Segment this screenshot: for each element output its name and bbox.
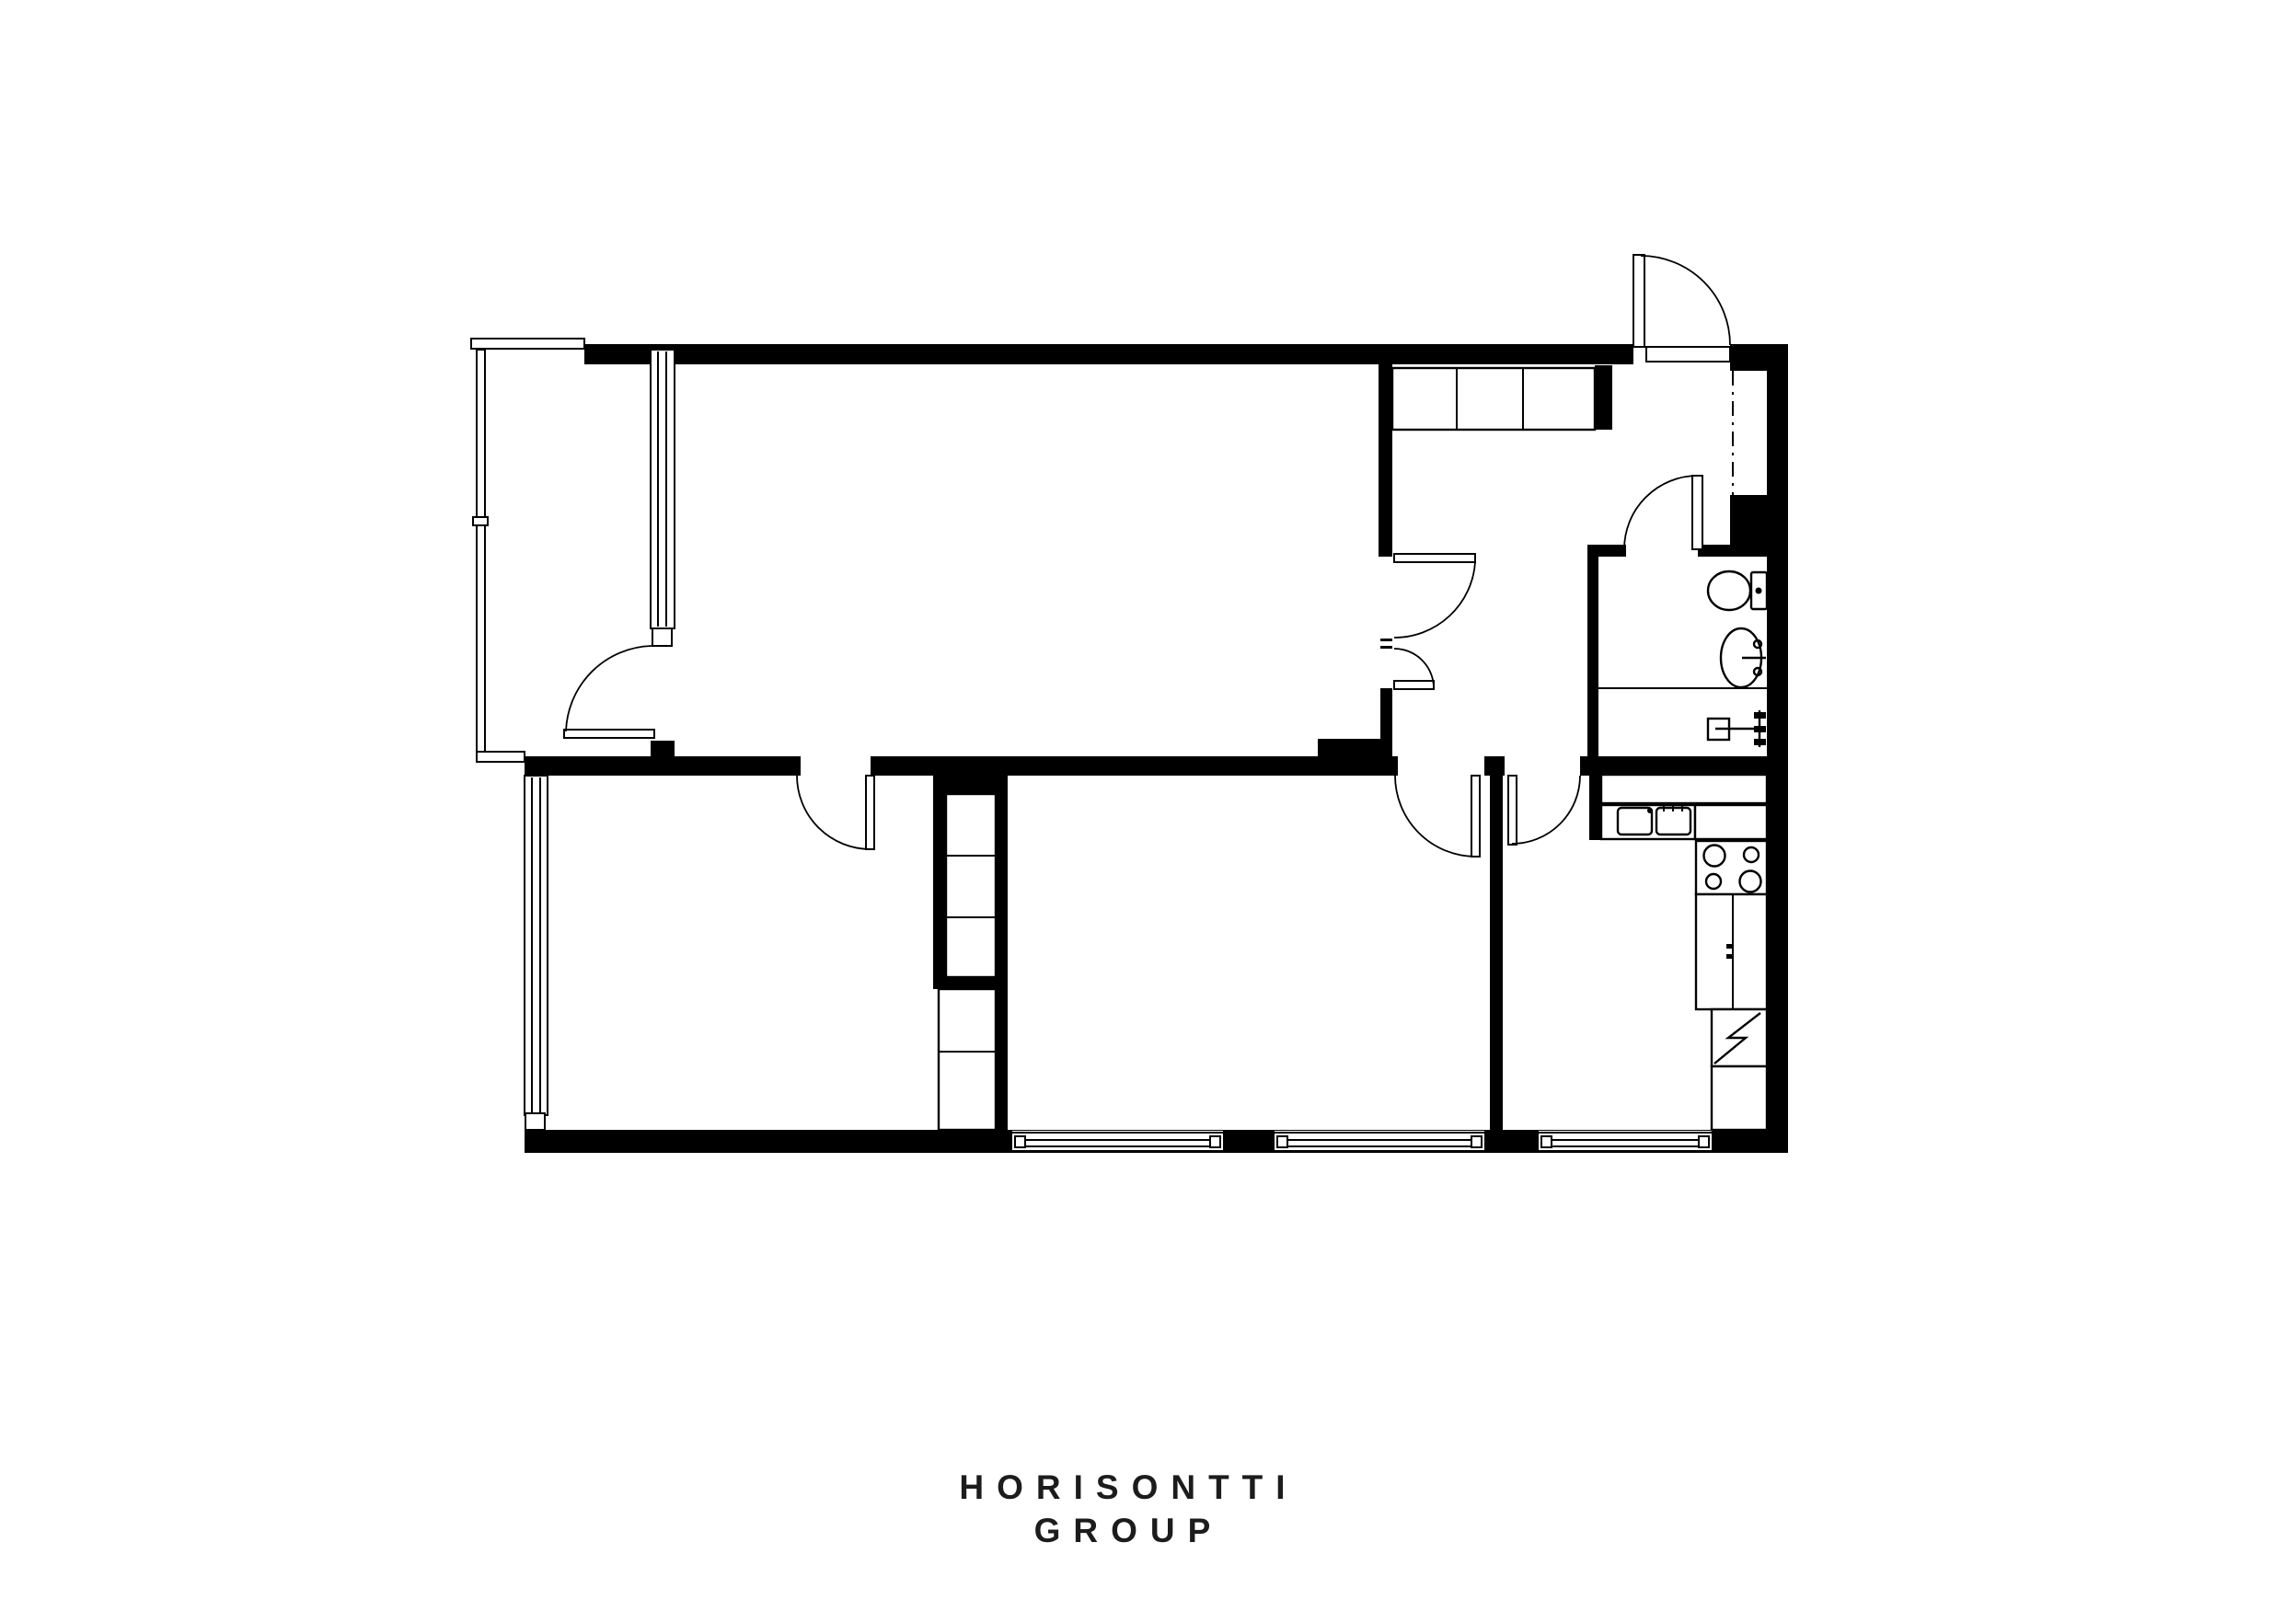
upper-wardrobe-box — [946, 794, 996, 977]
walls — [525, 344, 1788, 1153]
bedroom-wardrobe-icon — [939, 989, 996, 1130]
brand-line-1: HORISONTTI — [0, 1470, 2277, 1504]
balcony-door-leaf — [564, 730, 654, 738]
window-end-post — [1277, 1136, 1287, 1147]
window-icon — [525, 776, 548, 1130]
shower-mixer-knob — [1754, 712, 1766, 719]
lower-wardrobe-box — [939, 989, 996, 1130]
hall-door-arc — [1394, 562, 1475, 638]
cabinet-box — [1696, 894, 1767, 1009]
mid-wall-seg-3 — [1580, 756, 1788, 776]
mid-wall-step — [1318, 739, 1392, 760]
bedroom1-window-post — [525, 1113, 545, 1130]
floor-plan-canvas: HORISONTTI GROUP — [0, 0, 2296, 1623]
column-right-bar — [996, 768, 1008, 1153]
entrance-door-icon — [1633, 255, 1730, 362]
bedroom2-door-icon — [1395, 776, 1480, 857]
balcony-glazing-post — [652, 628, 672, 646]
hall-wall-lower — [1380, 688, 1392, 742]
four-burner-stove-icon — [1696, 841, 1767, 894]
bedroom1-window — [525, 776, 548, 1115]
top-wall — [584, 344, 1633, 364]
balcony-stub-wall — [651, 741, 675, 760]
bathroom-door-icon — [1624, 476, 1702, 549]
washbasin-icon — [1721, 628, 1766, 687]
kitchen-fixtures — [1601, 775, 1767, 1130]
sink-faucet-dot — [1647, 808, 1653, 813]
right-wall — [1767, 344, 1788, 1153]
bedroom-wardrobe-icon — [946, 794, 996, 977]
cabinet-handle — [1726, 954, 1734, 959]
kitchen-door-leaf — [1508, 776, 1517, 845]
entrance-threshold — [1646, 347, 1730, 362]
floor-plan-drawing — [0, 0, 2296, 1623]
column-mid-band — [933, 977, 1003, 989]
bedroom1-door-arc — [797, 776, 871, 849]
bathroom-door-arc — [1624, 476, 1698, 549]
window-icon — [651, 350, 675, 646]
bedroom2-door-leaf — [1471, 776, 1480, 857]
bottom-windows — [1012, 1131, 1712, 1150]
balcony-door-arc — [566, 646, 652, 731]
mid-wall-pier — [1484, 756, 1505, 776]
window-end-post — [1471, 1136, 1482, 1147]
bedroom1-door-leaf — [866, 776, 874, 849]
brand-logo: HORISONTTI GROUP — [0, 1470, 2277, 1548]
column-left-bar — [933, 794, 946, 986]
hall-wall-upper — [1379, 363, 1392, 557]
base-cabinet-icon — [1712, 1066, 1767, 1130]
toilet-flush-dot — [1756, 588, 1762, 594]
brand-line-2: GROUP — [0, 1514, 2277, 1548]
bathroom-door-leaf — [1692, 476, 1702, 549]
hall-small-leaf — [1394, 681, 1434, 689]
livingroom-hall-door-icon — [1394, 554, 1475, 689]
kitchen-stub-wall — [1589, 776, 1601, 840]
balcony-rail-bottom — [477, 752, 525, 762]
refrigerator-icon — [1712, 1009, 1767, 1066]
kitchen-door-icon — [1508, 776, 1580, 845]
balcony-rail-left — [477, 350, 485, 753]
bathroom-fixtures — [1598, 571, 1767, 747]
shower-mixer-knob — [1754, 726, 1766, 732]
hall-wall-mullion-b — [1380, 646, 1392, 649]
shower-mixer-knob — [1754, 739, 1766, 745]
window-end-post — [1210, 1136, 1220, 1147]
hall-door-leaf — [1394, 554, 1475, 562]
bedroom2-door-arc — [1395, 776, 1476, 857]
cabinet-handle — [1726, 944, 1734, 949]
window-end-post — [1699, 1136, 1709, 1147]
bedroom1-door-icon — [797, 776, 874, 849]
toilet-icon — [1708, 571, 1767, 610]
entrance-door-leaf — [1633, 255, 1644, 347]
balcony-glazing — [651, 350, 675, 628]
hall-closet-pier — [1595, 365, 1612, 430]
hall-wardrobe-box — [1392, 368, 1595, 430]
kitchen-room-wall — [1490, 776, 1503, 1130]
hall-wardrobe-icon — [1392, 368, 1595, 430]
bathroom-left-wall — [1587, 545, 1598, 760]
double-basin-sink-icon — [1601, 805, 1695, 839]
balcony-rail-joint — [473, 517, 488, 525]
base-cabinet-icon — [1696, 894, 1767, 1009]
hall-wall-mullion-a — [1380, 639, 1392, 641]
shower-valve-icon — [1708, 710, 1766, 747]
window-end-post — [1015, 1136, 1025, 1147]
toilet-bowl — [1708, 571, 1750, 610]
kitchen-door-arc — [1512, 776, 1580, 844]
kitchen-counter-icon — [1601, 775, 1767, 803]
balcony-rail-top — [471, 339, 584, 349]
window-end-post — [1541, 1136, 1552, 1147]
counter-corner — [1695, 805, 1767, 839]
balcony-door-icon — [564, 646, 654, 738]
bathroom-corner-block — [1730, 495, 1767, 557]
entrance-door-arc — [1641, 256, 1730, 345]
bathroom-top-wall-a — [1587, 545, 1626, 557]
balcony-railing-icon — [471, 339, 584, 762]
